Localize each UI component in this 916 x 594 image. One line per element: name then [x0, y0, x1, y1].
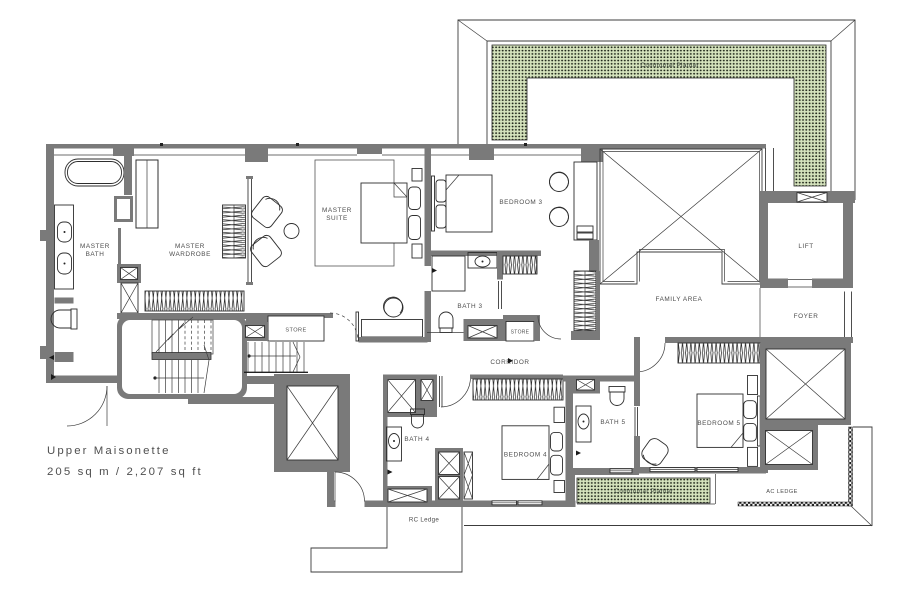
svg-text:BATH: BATH	[86, 251, 105, 258]
svg-text:SUITE: SUITE	[326, 215, 348, 222]
svg-text:LIFT: LIFT	[798, 243, 813, 250]
svg-text:BEDROOM 5: BEDROOM 5	[697, 420, 740, 427]
svg-text:MASTER: MASTER	[175, 243, 205, 250]
svg-text:FOYER: FOYER	[794, 313, 819, 320]
svg-text:Communal Planter: Communal Planter	[614, 488, 673, 495]
svg-text:FAMILY AREA: FAMILY AREA	[655, 296, 702, 303]
svg-text:205 sq m / 2,207 sq ft: 205 sq m / 2,207 sq ft	[47, 466, 203, 478]
svg-text:RC Ledge: RC Ledge	[409, 517, 440, 524]
svg-text:BATH 5: BATH 5	[600, 419, 625, 426]
svg-text:MASTER: MASTER	[80, 243, 110, 250]
svg-text:WARDROBE: WARDROBE	[169, 251, 211, 258]
svg-text:Communal Planter: Communal Planter	[640, 62, 699, 69]
svg-text:BEDROOM 4: BEDROOM 4	[504, 452, 547, 459]
svg-text:Upper Maisonette: Upper Maisonette	[47, 445, 171, 457]
svg-text:BATH 3: BATH 3	[457, 303, 482, 310]
svg-text:BEDROOM 3: BEDROOM 3	[499, 199, 542, 206]
svg-text:STORE: STORE	[511, 330, 530, 336]
svg-text:AC LEDGE: AC LEDGE	[766, 489, 798, 495]
svg-text:STORE: STORE	[285, 328, 306, 334]
svg-text:MASTER: MASTER	[322, 207, 352, 214]
svg-text:BATH 4: BATH 4	[404, 436, 429, 443]
